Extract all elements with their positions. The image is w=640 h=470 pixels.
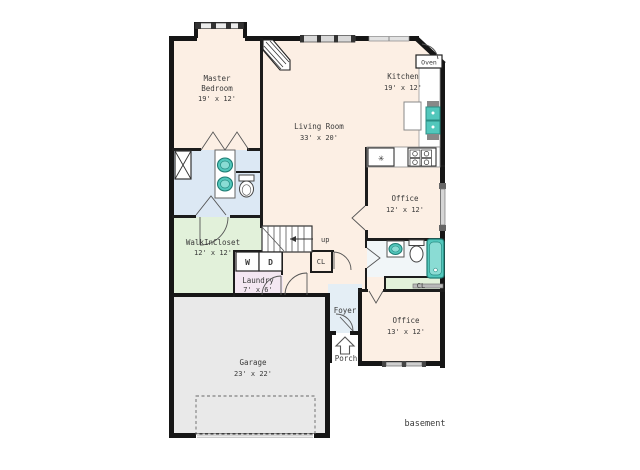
wall-cl-bottom — [310, 271, 333, 273]
window-cap — [439, 183, 446, 189]
fridge-snowflake: ✳ — [378, 153, 384, 164]
kitchen-dims: 19' x 12' — [384, 84, 422, 92]
window-cap — [317, 35, 321, 43]
wall-bath-bottom-b — [230, 215, 262, 218]
stairs — [262, 226, 313, 252]
room-office-lower-fill — [360, 290, 445, 363]
living-room-label: Living Room — [294, 122, 344, 131]
bay-window-cap — [211, 23, 216, 30]
office-upper-window — [441, 189, 446, 225]
office-upper-dims: 12' x 12' — [386, 206, 424, 214]
porch-label: Porch — [335, 354, 358, 363]
laundry-appliances — [236, 252, 282, 271]
window-cap — [439, 225, 446, 231]
wall-foyer-bottom-b — [350, 331, 362, 335]
sink-cap — [427, 134, 439, 140]
laundry-dims: 7' x 6' — [243, 286, 273, 294]
dryer-label: D — [268, 258, 273, 267]
wall-bath-bottom-a — [172, 215, 196, 218]
garage-label: Garage — [239, 358, 267, 367]
room-office-upper-fill — [367, 167, 445, 240]
bay-window — [196, 23, 243, 29]
wall-left — [169, 36, 174, 438]
bay-window-cap — [226, 23, 231, 30]
wall-top-master — [169, 36, 197, 41]
walkin-closet-dims: 12' x 12' — [194, 249, 232, 257]
wall-laundry-left — [233, 250, 235, 297]
stairs-up-label: up — [321, 236, 329, 244]
sink-basin — [221, 161, 230, 169]
window-cap — [382, 361, 386, 367]
wall-cl-right — [331, 250, 333, 273]
office-lower-window — [386, 362, 402, 366]
garage-dims: 23' x 22' — [234, 370, 272, 378]
wall-bay-right — [243, 22, 247, 38]
laundry-label: Laundry — [242, 276, 274, 285]
sink-cap — [427, 101, 439, 107]
wall-corridor-a — [365, 238, 367, 248]
toilet-icon — [410, 246, 423, 262]
office-lower-dims: 13' x 12' — [387, 328, 425, 336]
wall-master-right — [260, 38, 263, 228]
wall-master-bottom-b — [247, 148, 262, 151]
window-cap — [334, 35, 338, 43]
bay-window-cap — [196, 23, 201, 30]
office-lower-label: Office — [392, 316, 420, 325]
sink-drain — [432, 112, 435, 115]
wall-cl-left — [310, 250, 312, 273]
kitchen-label: Kitchen — [387, 72, 419, 81]
wall-foyer-bottom-a — [328, 331, 336, 335]
floor-plan-svg: ✳ — [0, 0, 640, 470]
wall-office-lower-top-a — [358, 289, 368, 292]
window-cap — [351, 35, 355, 43]
wall-top-mid2 — [355, 36, 369, 41]
sink-drain — [432, 126, 435, 129]
corridor-fill — [367, 277, 385, 290]
wall-corridor-b — [365, 268, 367, 292]
wall-garage-right — [325, 295, 330, 438]
oven-label: Oven — [421, 59, 437, 67]
sink-basin — [392, 246, 400, 252]
toilet-icon — [240, 181, 254, 197]
wall-wc — [236, 171, 262, 173]
sink-basin — [221, 180, 230, 188]
master-bedroom-label-2: Bedroom — [201, 84, 233, 93]
master-bedroom-dims: 19' x 12' — [198, 95, 236, 103]
window-cap — [422, 361, 426, 367]
floor-plan-page: ✳ — [0, 0, 640, 470]
window-cap — [300, 35, 304, 43]
room-master-bedroom-fill — [172, 38, 262, 150]
hall-closet-label: CL — [317, 258, 325, 266]
bay-window-cap — [238, 23, 243, 30]
wall-office-lower-top-b — [383, 289, 445, 292]
living-room-window — [301, 36, 355, 43]
bath2-closet-label: CL — [417, 282, 425, 290]
wall-porch-left — [328, 331, 332, 363]
toilet-tank — [239, 175, 254, 181]
foyer-label: Foyer — [334, 306, 357, 315]
window-cap — [402, 361, 406, 367]
master-bedroom-label-1: Master — [203, 74, 231, 83]
basement-label: basement — [405, 419, 446, 429]
washer-label: W — [245, 258, 250, 267]
office-lower-window — [406, 362, 422, 366]
walkin-closet-label: WalkInCloset — [186, 238, 240, 247]
tub-drain — [434, 268, 438, 272]
living-room-dims: 33' x 20' — [300, 134, 338, 142]
toilet-tank — [409, 240, 424, 246]
kitchen-island — [404, 102, 421, 130]
wall-foyer-right — [358, 288, 362, 363]
office-upper-label: Office — [391, 194, 419, 203]
